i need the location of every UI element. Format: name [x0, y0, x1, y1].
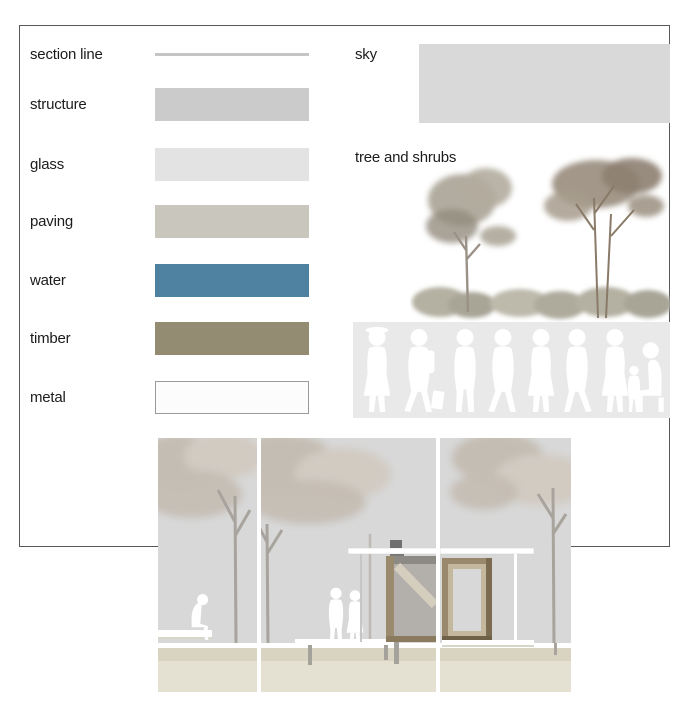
structure-swatch [155, 88, 309, 121]
roof-anchor [390, 540, 402, 548]
metal-swatch [155, 381, 309, 414]
bench-left [158, 630, 212, 639]
sky-label: sky [355, 46, 377, 63]
timber-swatch [155, 322, 309, 355]
water-label: water [30, 272, 66, 289]
panel-divider-2 [436, 438, 440, 692]
hedge-row [412, 287, 670, 319]
window-opening [453, 569, 481, 631]
water-swatch [155, 264, 309, 297]
ledge [442, 640, 534, 645]
section-line-label: section line [30, 46, 103, 63]
people-scale-strip [353, 322, 670, 418]
section-line-swatch [155, 53, 309, 56]
paving-label: paving [30, 213, 73, 230]
front-post [514, 554, 517, 642]
section-drawing [158, 438, 571, 692]
tree-and-shrubs-illustration [410, 140, 670, 322]
timber-sill [386, 636, 436, 642]
roof-slab [348, 548, 440, 554]
sky-swatch [419, 44, 670, 123]
foundation-post [394, 642, 399, 664]
drawing-ground [158, 643, 571, 692]
panel-divider-1 [257, 438, 261, 692]
timber-label: timber [30, 330, 70, 347]
timber-post [386, 556, 394, 642]
paving-swatch [155, 205, 309, 238]
structure-label: structure [30, 96, 87, 113]
glass-front-edge [360, 552, 362, 642]
glass-swatch [155, 148, 309, 181]
metal-label: metal [30, 389, 66, 406]
legend-sheet: section line structure glass paving wate… [0, 0, 691, 720]
glass-label: glass [30, 156, 64, 173]
roof-slab-right [440, 548, 534, 554]
